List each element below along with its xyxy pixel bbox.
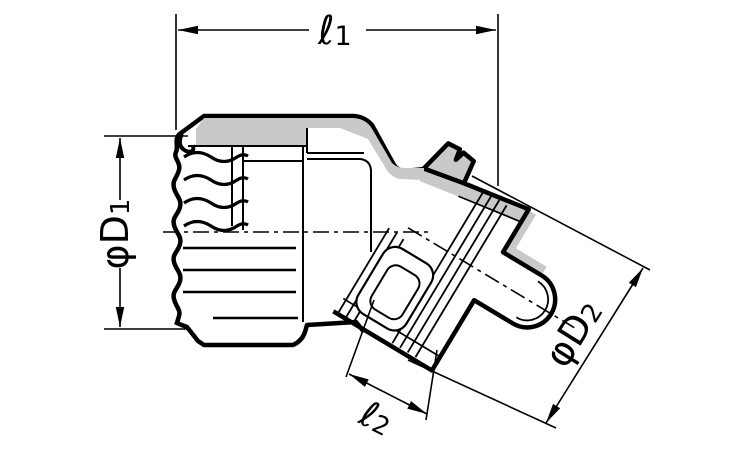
nut-section-fill <box>196 118 306 145</box>
connector-diagram: ℓ1 φD1 φD2 ℓ2 <box>0 0 750 450</box>
technical-drawing-page: ℓ1 φD1 φD2 ℓ2 <box>0 0 750 450</box>
